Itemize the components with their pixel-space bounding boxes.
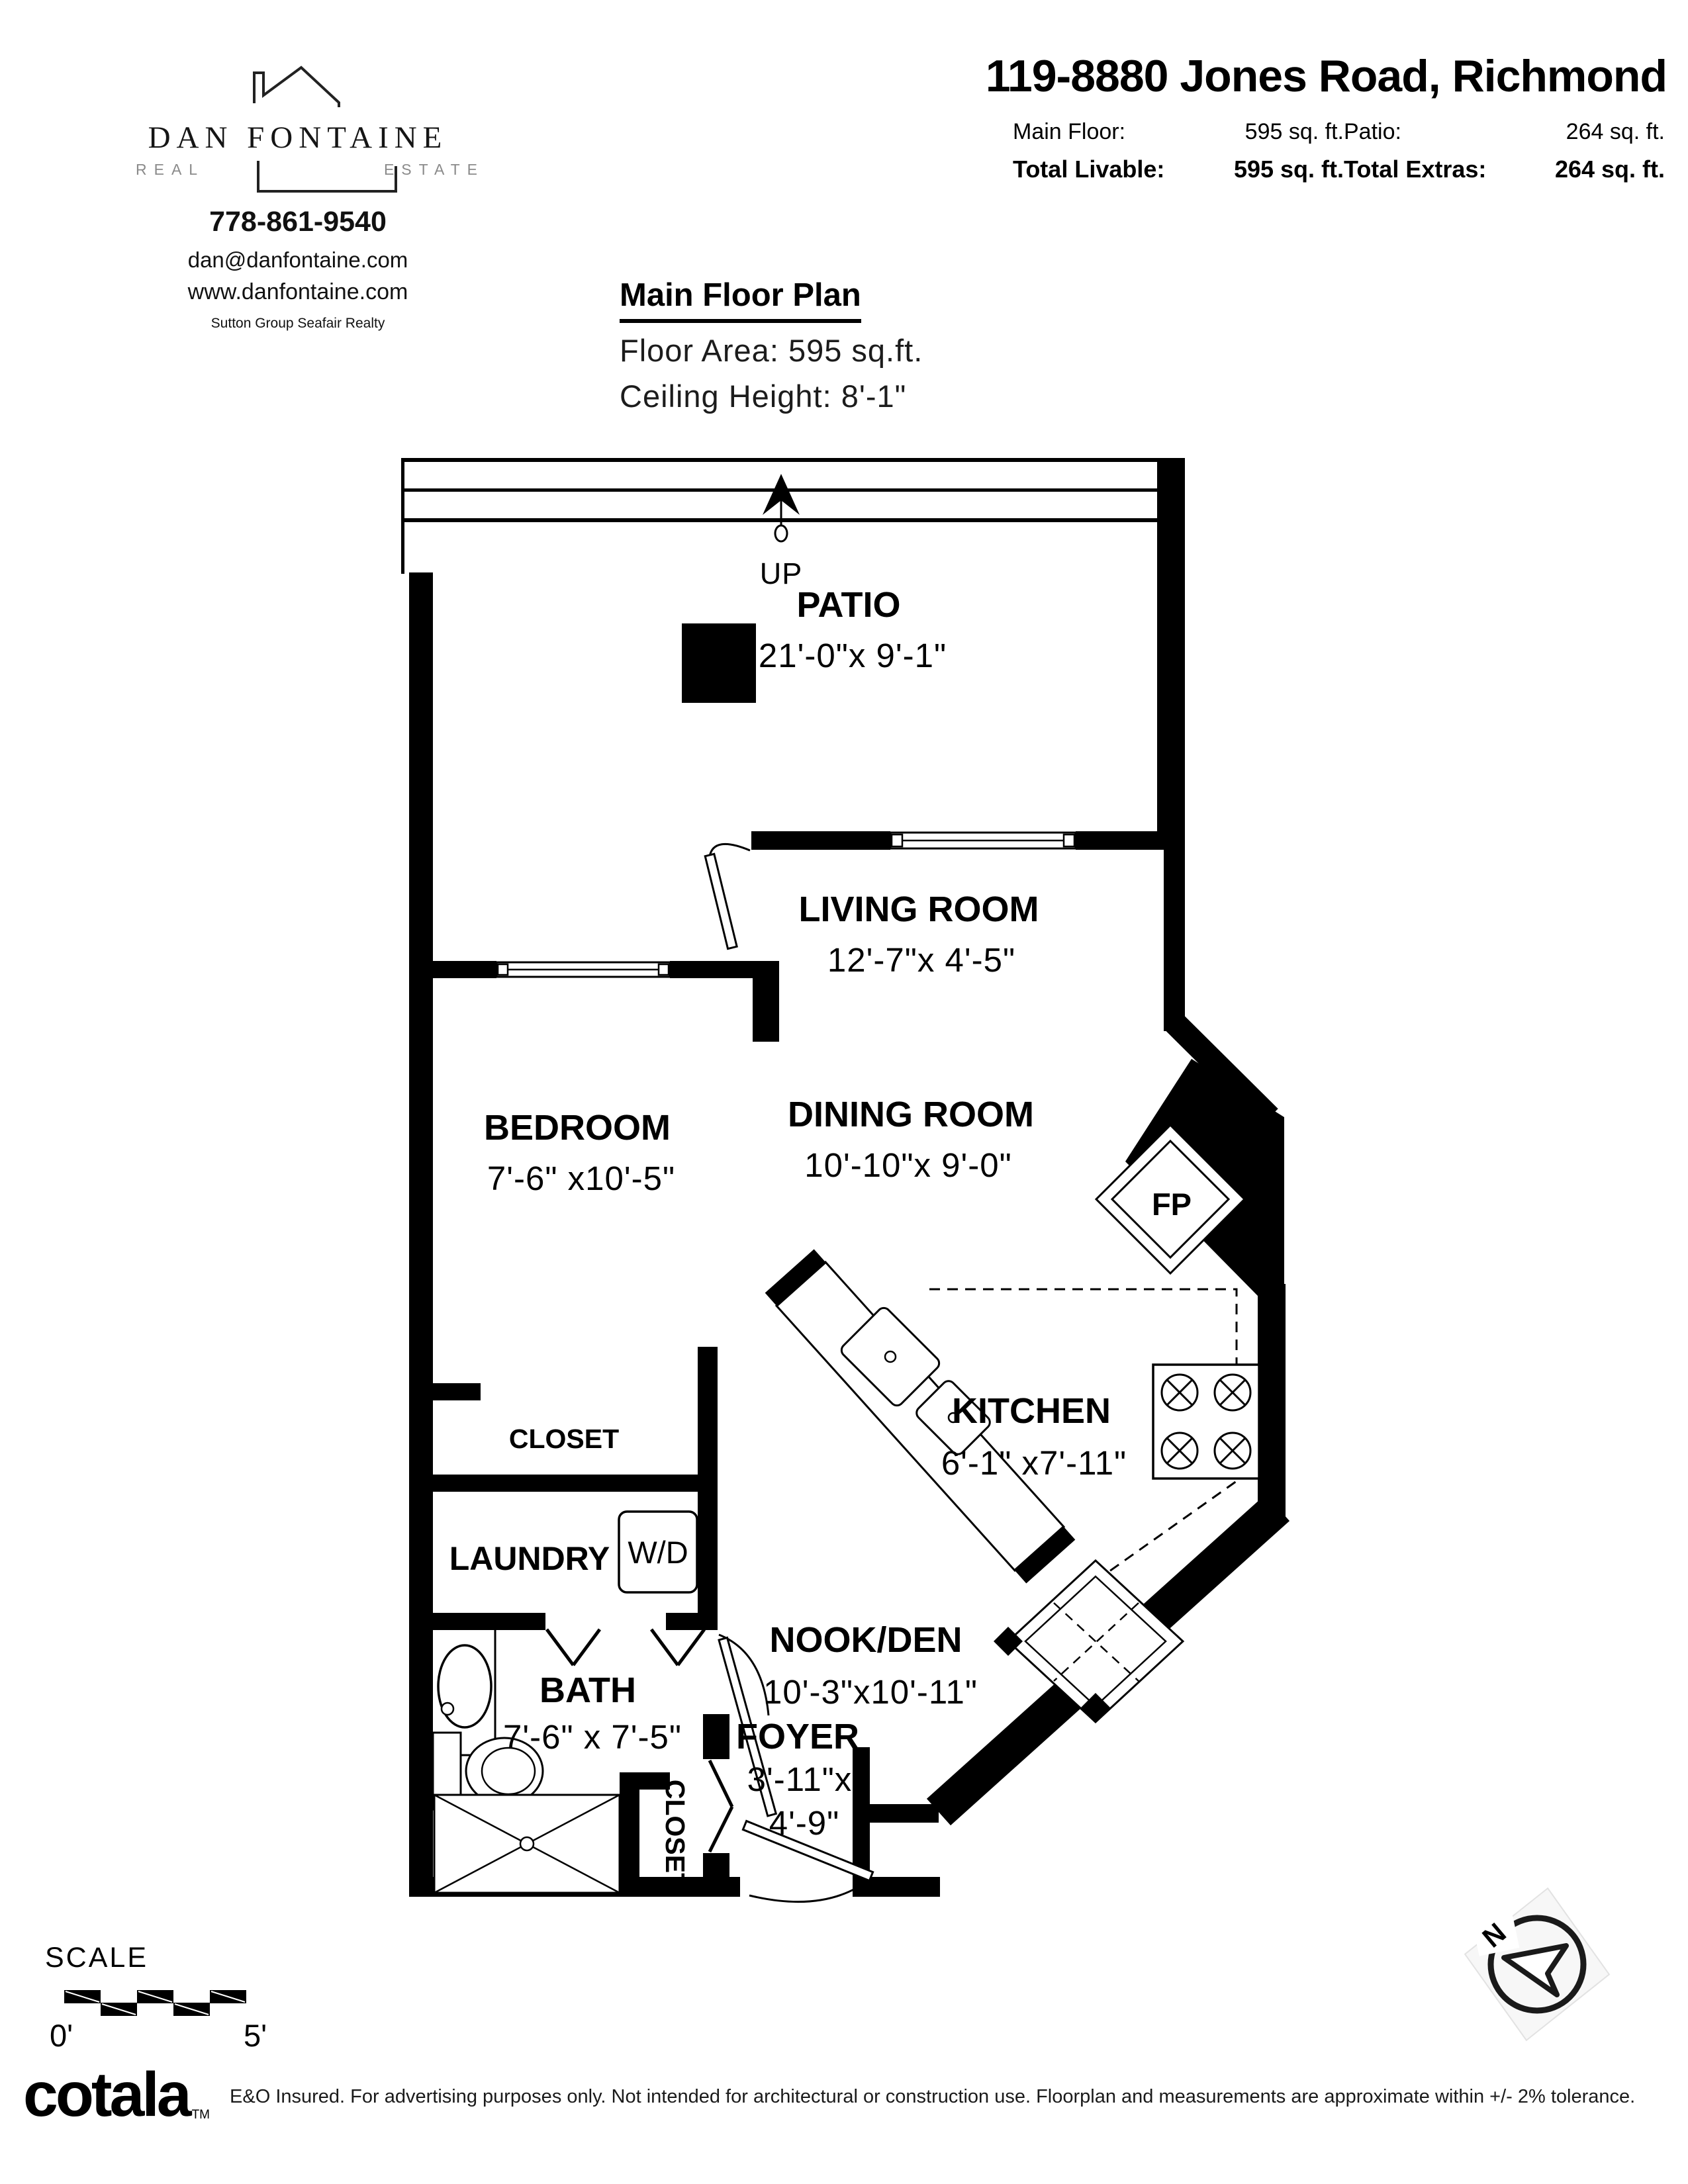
scale-label: SCALE — [45, 1942, 148, 1974]
cotala-trademark: TM — [192, 2108, 210, 2122]
patio-dims: 21'-0"x 9'-1" — [759, 637, 947, 674]
window-bedroom — [496, 962, 670, 977]
wall-patio-right — [1157, 458, 1185, 850]
dining-room-label: DINING ROOM — [788, 1095, 1034, 1134]
nook-den-dims: 10'-3"x10'-11" — [763, 1673, 978, 1711]
fp-label: FP — [1152, 1187, 1192, 1222]
compass-icon: N — [1454, 1878, 1620, 2050]
patio-label: PATIO — [797, 585, 901, 625]
bedroom-dims: 7'-6" x10'-5" — [487, 1160, 675, 1197]
nook-den-label: NOOK/DEN — [769, 1620, 962, 1660]
wd-label: W/D — [628, 1535, 688, 1570]
floorplan-page: { "agent": { "name": "DAN FONTAINE", "ta… — [0, 0, 1688, 2184]
patio-post — [682, 623, 756, 703]
scale-end: 5' — [244, 2018, 267, 2053]
scale-bar: SCALE 0' 5' — [45, 1942, 267, 2053]
bath-label: BATH — [539, 1670, 636, 1710]
wall-living-right — [1164, 850, 1185, 1031]
foyer-closet-label: CLOSET — [660, 1780, 690, 1889]
scale-start: 0' — [50, 2018, 73, 2053]
bedroom-label: BEDROOM — [484, 1108, 671, 1148]
foyer-closet-bifold-door — [710, 1760, 732, 1852]
living-room-dims: 12'-7"x 4'-5" — [827, 941, 1015, 979]
floor-plan-svg: UP — [0, 0, 1688, 2184]
dining-room-dims: 10'-10"x 9'-0" — [804, 1146, 1012, 1184]
shower — [434, 1795, 620, 1893]
window-living — [890, 833, 1076, 848]
up-arrow-icon — [763, 474, 800, 541]
kitchen-dims: 6'-1" x7'-11" — [941, 1444, 1127, 1482]
laundry-label: LAUNDRY — [449, 1540, 610, 1577]
kitchen-island — [994, 1561, 1183, 1722]
bedroom-closet-label: CLOSET — [509, 1424, 619, 1454]
bath-bifold-door — [651, 1629, 704, 1665]
foyer-dims-1: 3'-11"x — [747, 1760, 853, 1798]
patio-door — [705, 844, 750, 948]
wall-left — [409, 572, 433, 1897]
cotala-logo: cotala — [23, 2064, 189, 2126]
footer: cotala TM E&O Insured. For advertising p… — [23, 2064, 1665, 2126]
foyer-label: FOYER — [736, 1717, 859, 1756]
living-room-label: LIVING ROOM — [799, 889, 1039, 929]
wall-kitchen-right — [1258, 1284, 1286, 1517]
footer-disclaimer: E&O Insured. For advertising purposes on… — [230, 2086, 1635, 2108]
bath-dims: 7'-6" x 7'-5" — [503, 1718, 682, 1756]
stove — [1153, 1365, 1259, 1479]
washer-dryer: W/D — [619, 1512, 697, 1592]
foyer-dims-2: 4'-9" — [769, 1804, 840, 1842]
kitchen-label: KITCHEN — [952, 1391, 1111, 1431]
laundry-bifold-door — [547, 1629, 600, 1665]
